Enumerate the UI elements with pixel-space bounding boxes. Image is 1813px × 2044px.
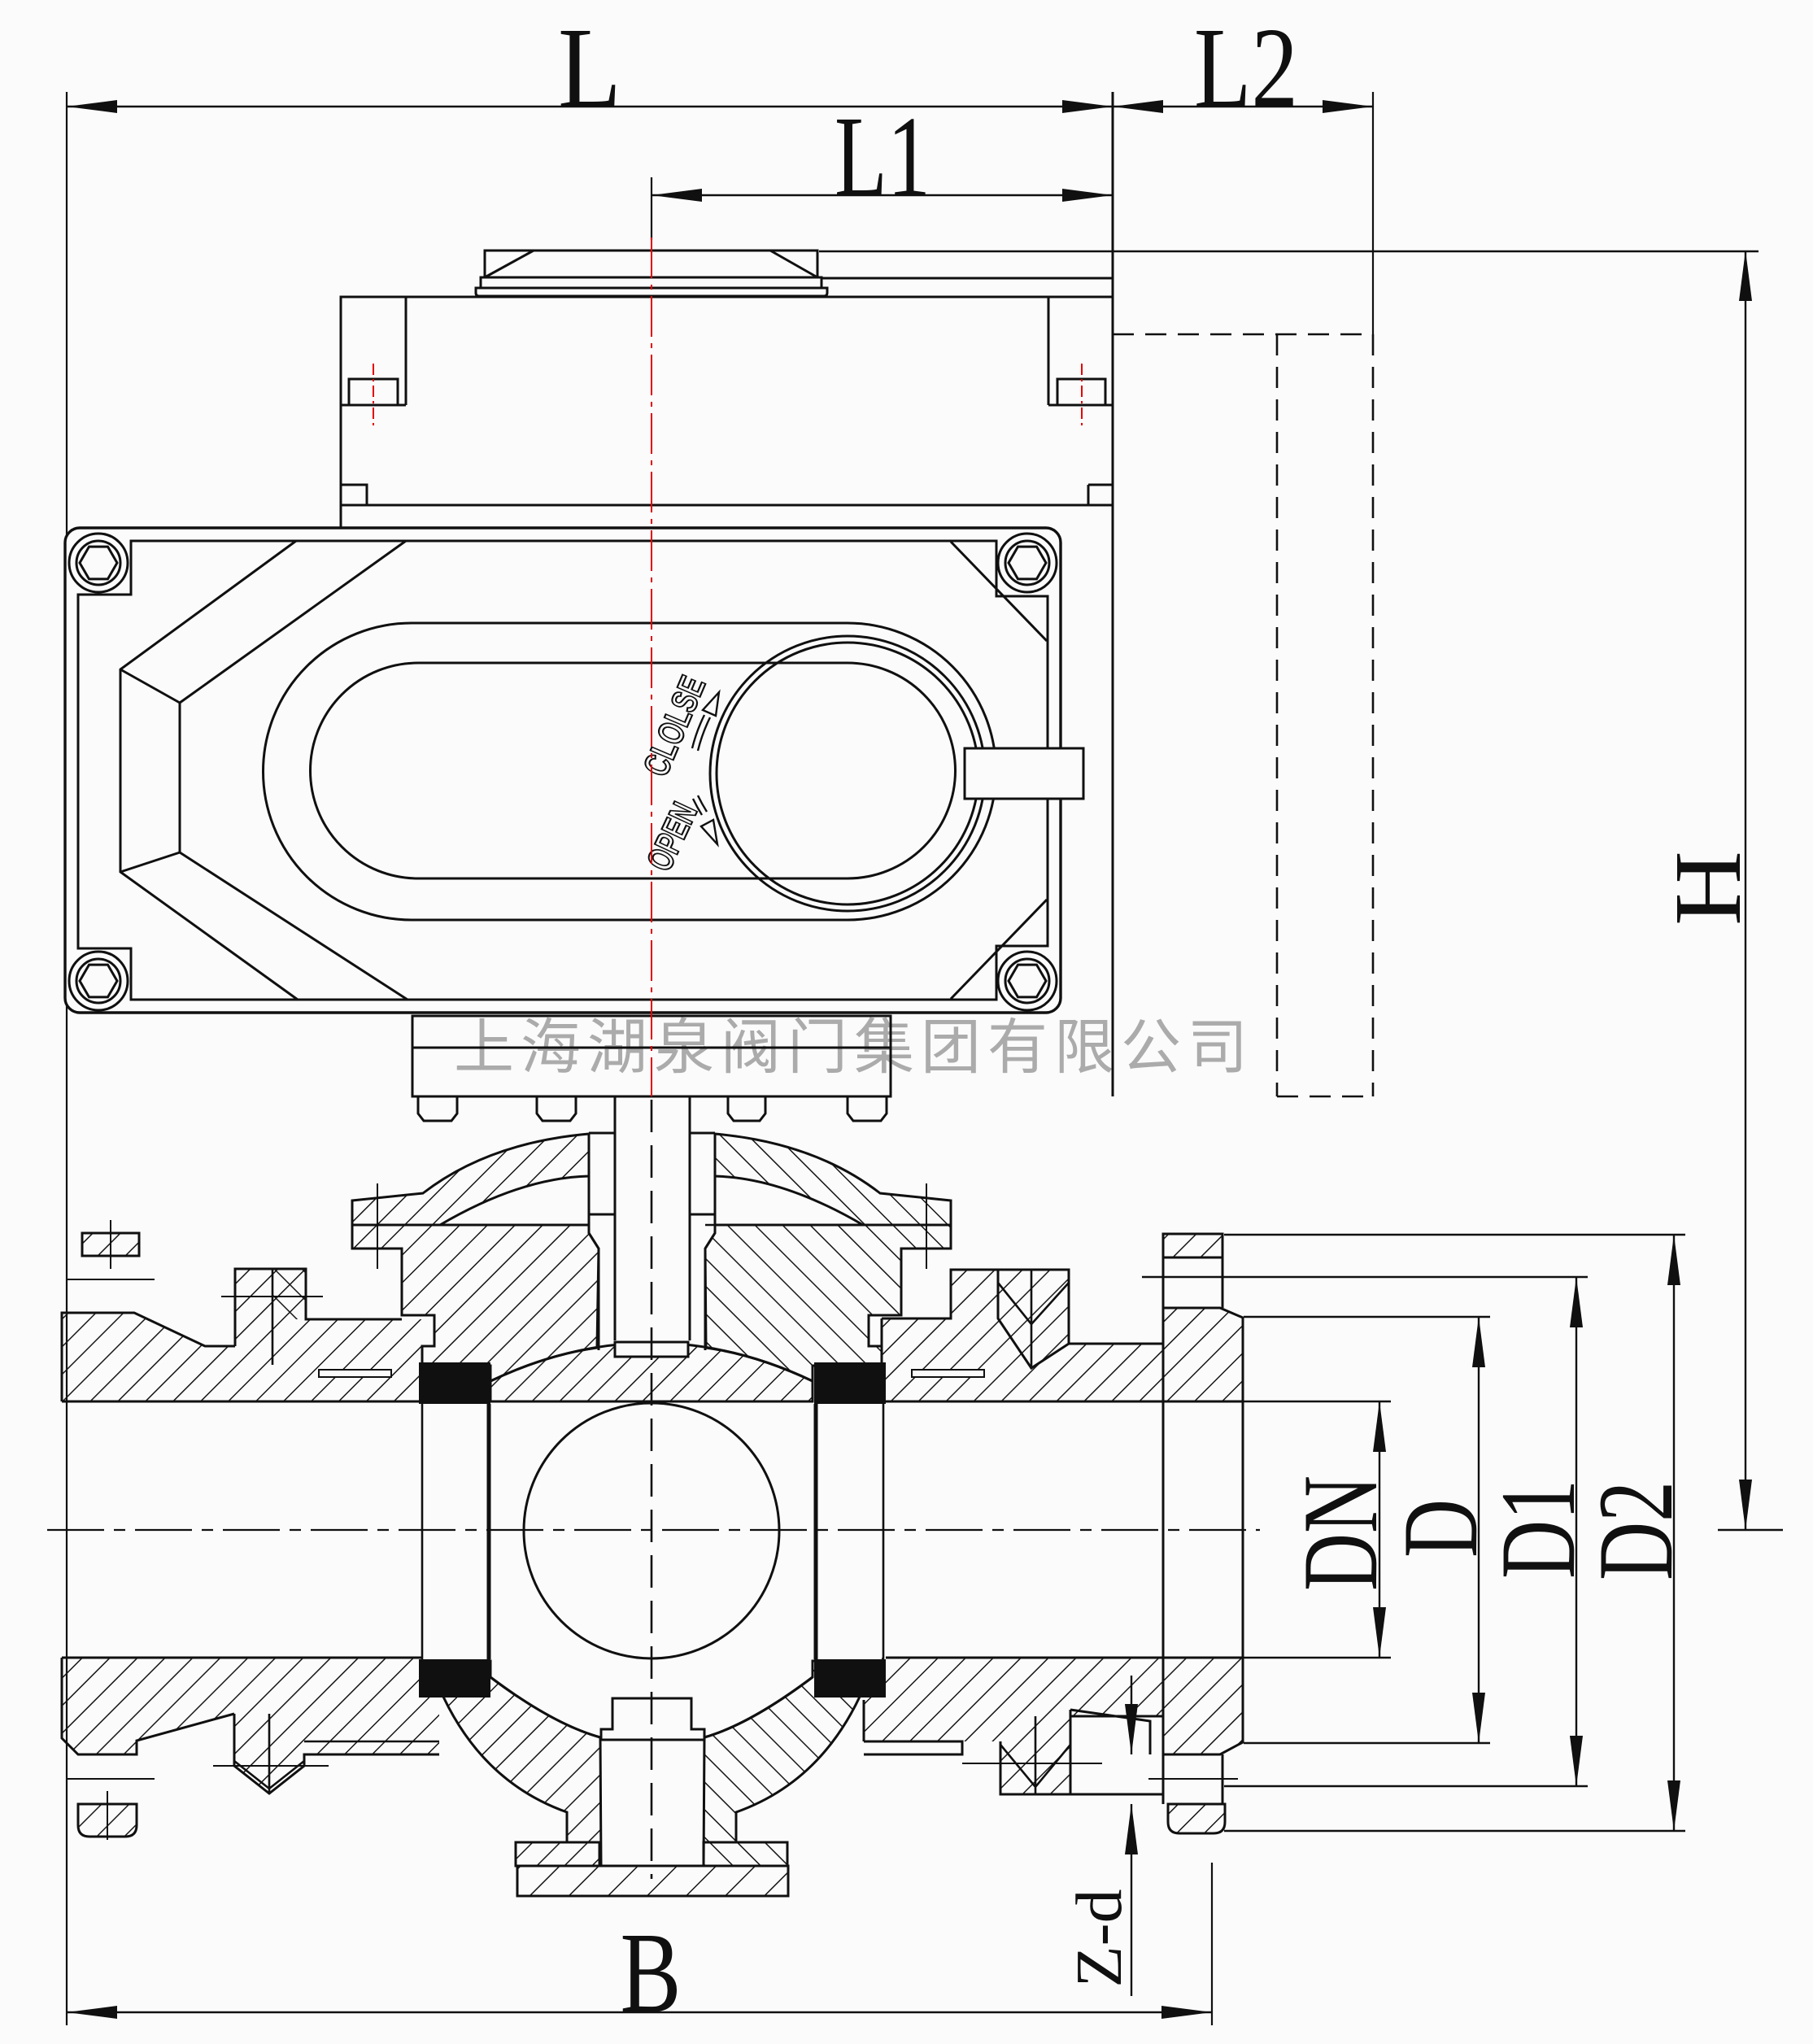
svg-text:上海湖泉阀门集团有限公司: 上海湖泉阀门集团有限公司 bbox=[454, 1013, 1254, 1081]
svg-text:B: B bbox=[621, 1908, 682, 2037]
svg-text:Z-d: Z-d bbox=[1064, 1889, 1135, 1988]
svg-text:L2: L2 bbox=[1194, 3, 1298, 132]
svg-text:H: H bbox=[1654, 851, 1761, 926]
svg-text:D2: D2 bbox=[1575, 1481, 1695, 1580]
svg-text:L: L bbox=[558, 3, 621, 132]
svg-text:L1: L1 bbox=[835, 92, 930, 220]
